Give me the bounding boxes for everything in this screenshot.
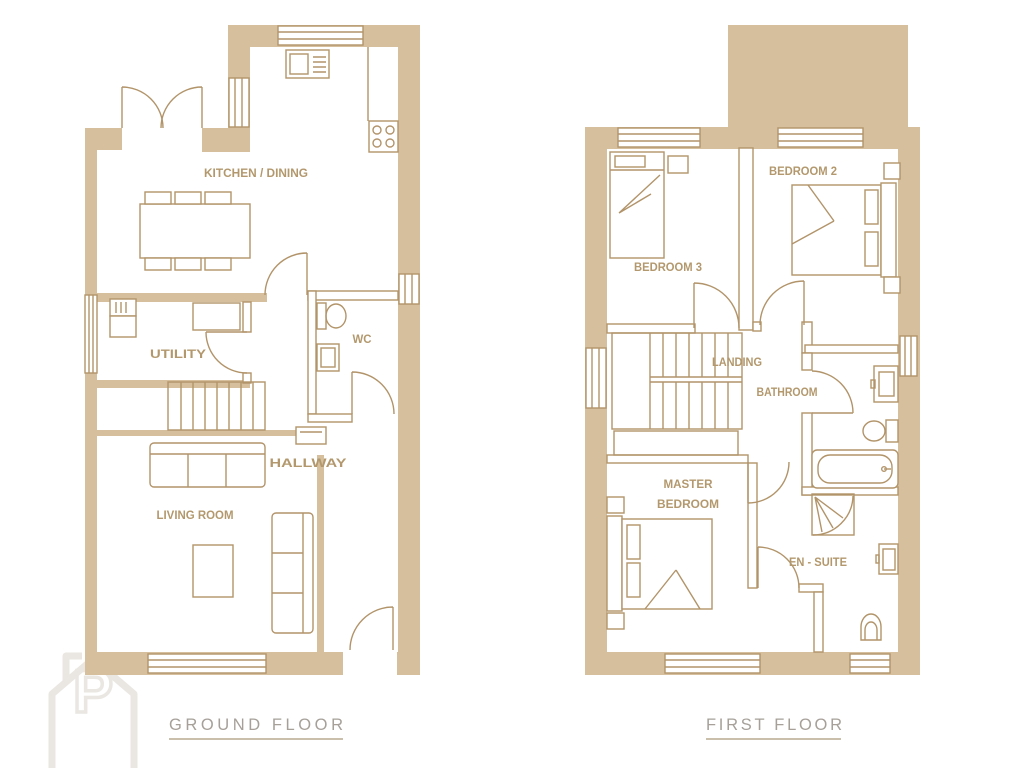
bathroom-basin	[871, 366, 898, 402]
ensuite-basin	[876, 544, 898, 574]
coffee-table	[193, 545, 233, 597]
master-bedroom-label-line2: BEDROOM	[657, 497, 719, 511]
ground-floor-title: GROUND FLOOR	[169, 716, 343, 734]
ensuite-toilet	[861, 614, 881, 640]
hallway-radiator	[296, 427, 326, 444]
first-floor-title: FIRST FLOOR	[706, 716, 842, 734]
hallway-label: HALLWAY	[270, 456, 347, 470]
landing-window	[586, 348, 606, 408]
bathroom-window	[900, 336, 917, 376]
utility-window	[85, 295, 97, 373]
utility-door	[206, 332, 247, 373]
sofa	[150, 443, 265, 487]
first-floor-plan: BEDROOM 2 BEDROOM 3 LANDING BATHROOM MAS…	[585, 25, 920, 675]
floorplan-page: P	[0, 0, 1024, 768]
utility-label: UTILITY	[150, 347, 206, 361]
front-door	[343, 607, 397, 675]
side-sofa	[272, 513, 313, 633]
master-bed	[607, 516, 712, 611]
kitchen-sink	[286, 50, 329, 78]
bedroom2-label: BEDROOM 2	[769, 164, 837, 178]
wc-door	[352, 372, 394, 414]
ground-stairs	[168, 382, 265, 430]
master-bedroom-window	[665, 654, 760, 673]
bedroom3-bed	[610, 152, 664, 258]
utility-worktop	[193, 303, 240, 330]
floorplan-drawing: P	[0, 0, 1024, 768]
bathroom-door	[812, 371, 853, 413]
dining-table	[140, 192, 250, 270]
landing-label: LANDING	[712, 355, 762, 369]
wc-toilet	[317, 303, 346, 329]
hob	[369, 121, 398, 152]
living-room-label: LIVING ROOM	[157, 508, 234, 522]
bedroom2-door	[760, 281, 804, 325]
kitchen-side-window	[229, 78, 249, 127]
bedroom3-label: BEDROOM 3	[634, 260, 702, 274]
utility-sink	[110, 299, 136, 337]
ensuite-window	[850, 654, 890, 673]
bedroom3-window	[618, 128, 700, 147]
bathroom-toilet	[863, 420, 898, 442]
bedroom3-door	[694, 283, 739, 328]
wc-window	[399, 274, 419, 304]
plan-titles: GROUND FLOOR FIRST FLOOR	[169, 716, 842, 739]
shower	[812, 494, 854, 535]
french-doors	[122, 87, 202, 128]
bedroom3-bedside-table	[668, 156, 688, 173]
bedroom2-bed	[792, 183, 896, 277]
bath-tub	[812, 450, 898, 488]
first-floor-stairs	[612, 333, 742, 455]
ground-floor-plan: KITCHEN / DINING UTILITY WC HALLWAY LIVI…	[85, 25, 420, 675]
bathroom-label: BATHROOM	[757, 385, 818, 399]
bedroom2-window	[778, 128, 863, 147]
kitchen-hallway-door	[265, 253, 307, 295]
master-bedroom-label-line1: MASTER	[664, 477, 713, 491]
ensuite-label: EN - SUITE	[789, 555, 847, 569]
wc-basin	[317, 344, 339, 371]
living-room-window	[148, 654, 266, 673]
kitchen-window	[278, 26, 363, 45]
wc-label: WC	[353, 332, 372, 346]
kitchen-dining-label: KITCHEN / DINING	[204, 166, 308, 180]
